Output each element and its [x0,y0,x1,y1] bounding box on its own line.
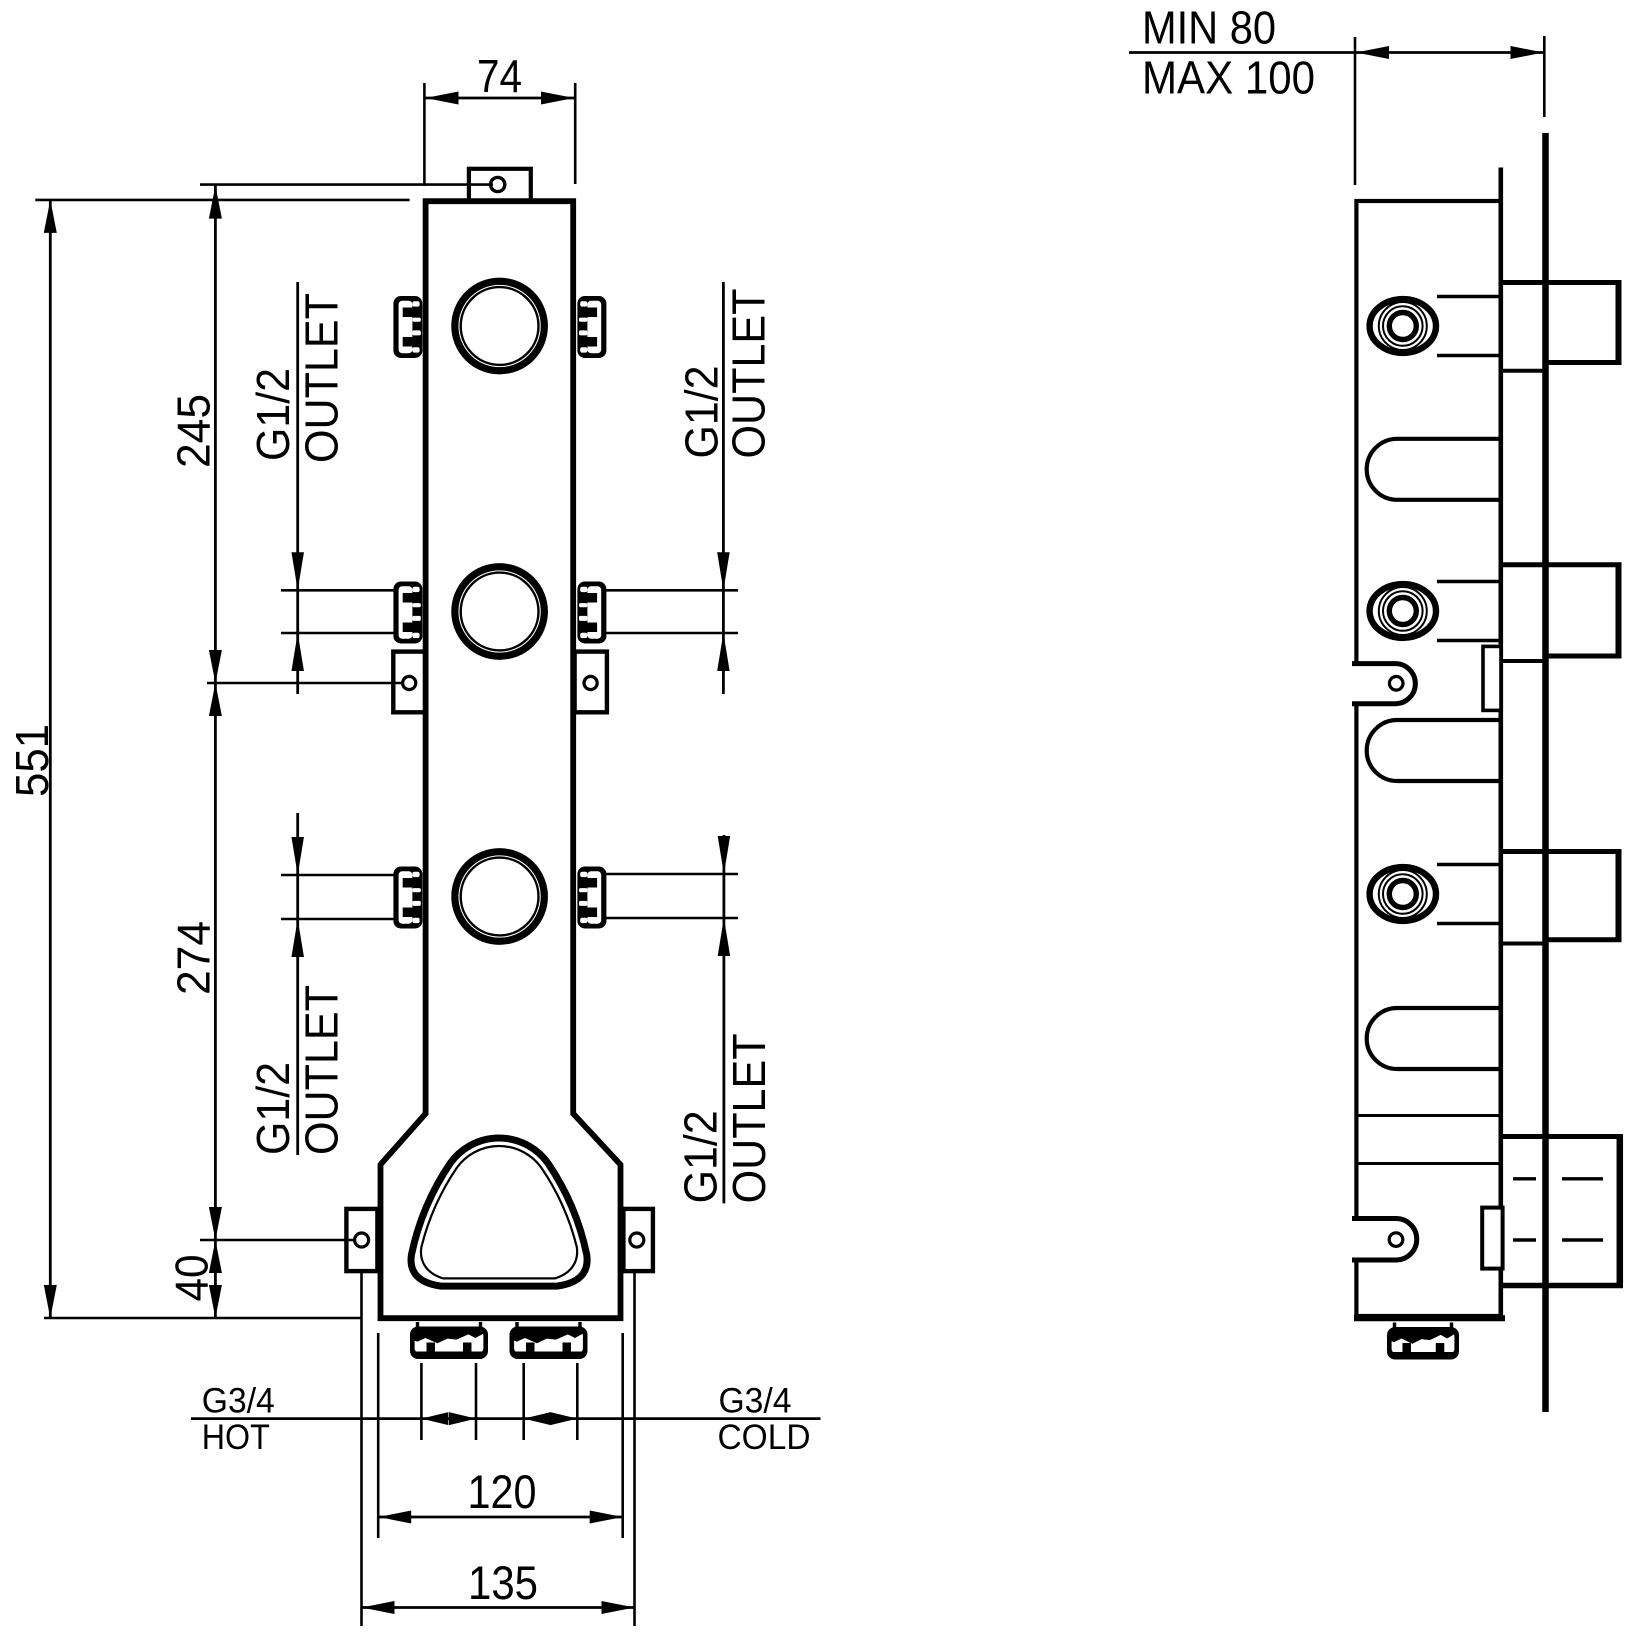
svg-text:MAX 100: MAX 100 [1142,52,1315,104]
svg-text:OUTLET: OUTLET [295,985,347,1155]
svg-text:135: 135 [468,1557,538,1610]
svg-text:HOT: HOT [202,1418,270,1457]
svg-text:245: 245 [168,394,220,468]
svg-text:G3/4: G3/4 [719,1382,792,1421]
svg-text:551: 551 [6,724,58,797]
svg-text:G3/4: G3/4 [202,1382,275,1421]
svg-text:OUTLET: OUTLET [722,289,774,459]
svg-text:G1/2: G1/2 [675,1110,727,1203]
svg-text:G1/2: G1/2 [247,368,299,461]
svg-text:G1/2: G1/2 [676,366,728,459]
svg-text:120: 120 [468,1466,537,1519]
svg-text:74: 74 [477,50,522,102]
svg-text:MIN 80: MIN 80 [1142,2,1276,54]
svg-text:OUTLET: OUTLET [723,1033,775,1203]
svg-text:COLD: COLD [718,1418,811,1457]
svg-text:274: 274 [168,921,220,995]
svg-text:40: 40 [166,1255,218,1302]
svg-text:OUTLET: OUTLET [295,293,347,463]
svg-text:G1/2: G1/2 [247,1062,299,1155]
